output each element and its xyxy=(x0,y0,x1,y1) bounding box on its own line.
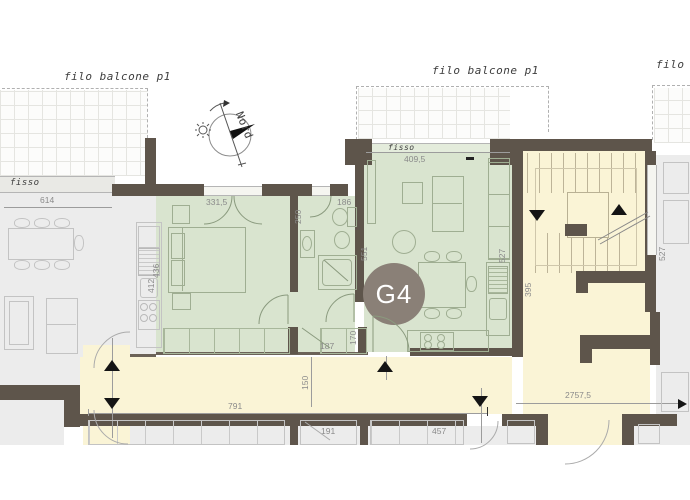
balcony-dashed-line xyxy=(652,85,690,86)
chair xyxy=(74,235,84,251)
dim-bottom-room-a: 191 xyxy=(321,427,335,436)
right-window-band xyxy=(647,165,657,255)
dim-left-apartment-width: 614 xyxy=(40,196,54,205)
bottom-unit-entry-arrow xyxy=(472,396,488,407)
chair xyxy=(446,308,462,319)
wardrobe-divider xyxy=(46,324,76,325)
balcony-line-label: filo balcone p1 xyxy=(656,59,690,70)
dim-line xyxy=(516,403,678,404)
balcony-dashed-line xyxy=(2,88,148,89)
chair xyxy=(424,308,440,319)
wall-segment xyxy=(360,426,368,445)
dim-stair-side: 527 xyxy=(658,247,667,261)
entry-up-arrow xyxy=(104,360,120,371)
nightstand xyxy=(172,293,191,310)
sun-icon xyxy=(195,122,211,138)
wall-segment xyxy=(112,184,204,196)
bedroom-window xyxy=(204,186,262,196)
wall-segment xyxy=(650,312,660,365)
tv-board xyxy=(367,160,376,224)
balcony-top-right xyxy=(654,88,690,143)
wall-segment xyxy=(145,138,156,185)
lobby-extension xyxy=(548,414,622,445)
chair xyxy=(14,260,30,270)
balcony-dashed-line xyxy=(548,86,549,132)
dim-living-depth: 527 xyxy=(498,249,507,263)
balcony-dashed-line xyxy=(147,88,148,138)
coffee-table xyxy=(402,182,423,204)
fridge xyxy=(488,266,508,294)
pillow xyxy=(171,233,185,259)
chair xyxy=(446,251,462,262)
dim-stair-depth: 395 xyxy=(524,283,533,297)
bottom-right-room xyxy=(638,424,660,444)
sofa-two-seat xyxy=(432,176,464,232)
chair xyxy=(14,218,30,228)
compass-arc-head xyxy=(223,100,230,107)
neighbor-furniture xyxy=(663,162,689,194)
wall-segment xyxy=(64,385,80,427)
bidet xyxy=(334,231,350,249)
toilet-bowl xyxy=(332,208,348,226)
dim-line xyxy=(311,357,312,407)
north-compass xyxy=(192,95,272,175)
fixed-window-left-label: fisso xyxy=(10,179,40,188)
hall-closet-row xyxy=(163,328,290,354)
dim-bottom-room-b: 457 xyxy=(432,427,446,436)
dim-line xyxy=(4,207,112,208)
dim-closet-depth: 170 xyxy=(349,331,358,345)
balcony-dashed-line xyxy=(652,85,653,140)
chair xyxy=(34,260,50,270)
chair xyxy=(466,276,477,292)
bottom-closet-row xyxy=(88,420,285,445)
floor-plan-canvas: filo balcone p1 filo balcone p1 filo bal… xyxy=(0,0,690,500)
dim-line xyxy=(366,152,510,153)
chair xyxy=(424,251,440,262)
unit-entry-arrow xyxy=(377,361,393,372)
wall-segment xyxy=(330,184,348,196)
pouf xyxy=(392,230,416,254)
neighbor-sofa-cushion xyxy=(9,301,29,345)
dim-living-width: 409,5 xyxy=(404,155,425,164)
neighbor-wardrobe xyxy=(46,298,78,354)
wall-segment xyxy=(582,271,645,283)
wall-segment xyxy=(536,414,548,445)
north-label: Nord xyxy=(234,110,255,141)
balcony-line-label: filo balcone p1 xyxy=(432,65,539,76)
dim-bath-width: 186 xyxy=(337,198,351,207)
neighbor-dining-table xyxy=(8,228,74,260)
neighbor-fridge xyxy=(138,226,160,248)
wall-segment xyxy=(262,184,312,196)
dim-line xyxy=(88,413,488,414)
dim-tick xyxy=(88,409,89,416)
sofa-cushion-line xyxy=(432,203,462,204)
neighbor-furniture xyxy=(663,200,689,244)
neighbor-furniture xyxy=(661,372,689,412)
stair-landing-wall xyxy=(565,224,587,236)
entry-down-arrow xyxy=(104,398,120,409)
balcony-top-left xyxy=(0,90,148,176)
unit-badge: G4 xyxy=(363,263,425,325)
chair xyxy=(54,218,70,228)
shower-tray xyxy=(322,259,352,286)
bottom-closet-row xyxy=(370,420,464,445)
dim-left-kitchen: 412 xyxy=(147,279,156,293)
burner xyxy=(140,303,148,311)
pillow xyxy=(171,260,185,286)
unit-badge-label: G4 xyxy=(376,281,413,307)
dim-corridor-length: 791 xyxy=(228,402,242,411)
balcony-line-label: filo balcone p1 xyxy=(64,71,171,82)
dim-bath-side: 551 xyxy=(360,247,369,261)
nightstand xyxy=(172,205,190,224)
dim-bedroom-width: 331,5 xyxy=(206,198,227,207)
dim-corridor-total: 2757,5 xyxy=(565,391,591,400)
burner xyxy=(424,341,432,349)
bottom-right-room xyxy=(507,420,535,444)
stair-up-arrow xyxy=(611,204,627,215)
wall-segment xyxy=(576,271,588,293)
compass-arc-arrow xyxy=(210,103,224,111)
washbasin-bowl xyxy=(302,236,312,251)
wall-segment xyxy=(512,139,652,151)
balcony-top-center xyxy=(358,88,510,139)
wall-segment xyxy=(290,426,298,445)
fixed-window-living-label: fisso xyxy=(388,144,415,152)
wall-segment xyxy=(622,414,634,445)
sofa xyxy=(488,158,510,260)
corridor xyxy=(80,357,512,414)
compass-tick xyxy=(238,163,246,165)
toilet-tank xyxy=(347,207,357,227)
chair xyxy=(34,218,50,228)
dim-entry-width: 187 xyxy=(320,342,334,351)
balcony-dashed-line xyxy=(356,86,357,140)
burner xyxy=(140,314,148,322)
chair xyxy=(54,260,70,270)
dim-tick xyxy=(487,407,488,416)
dim-corridor-width: 150 xyxy=(301,376,310,390)
kitchen-sink xyxy=(489,298,507,320)
dim-bath-depth: 250 xyxy=(294,210,303,224)
burner xyxy=(149,303,157,311)
burner xyxy=(149,314,157,322)
balcony-dashed-line xyxy=(356,86,549,87)
dining-table xyxy=(418,262,466,308)
dim-bedroom-depth: 436 xyxy=(152,264,161,278)
stair-down-arrow xyxy=(529,210,545,221)
wall-segment xyxy=(512,151,523,357)
wall-segment xyxy=(580,335,592,363)
burner xyxy=(437,341,445,349)
neighbor-apartment-bottom-left xyxy=(0,400,64,445)
plan-mark xyxy=(466,157,474,160)
